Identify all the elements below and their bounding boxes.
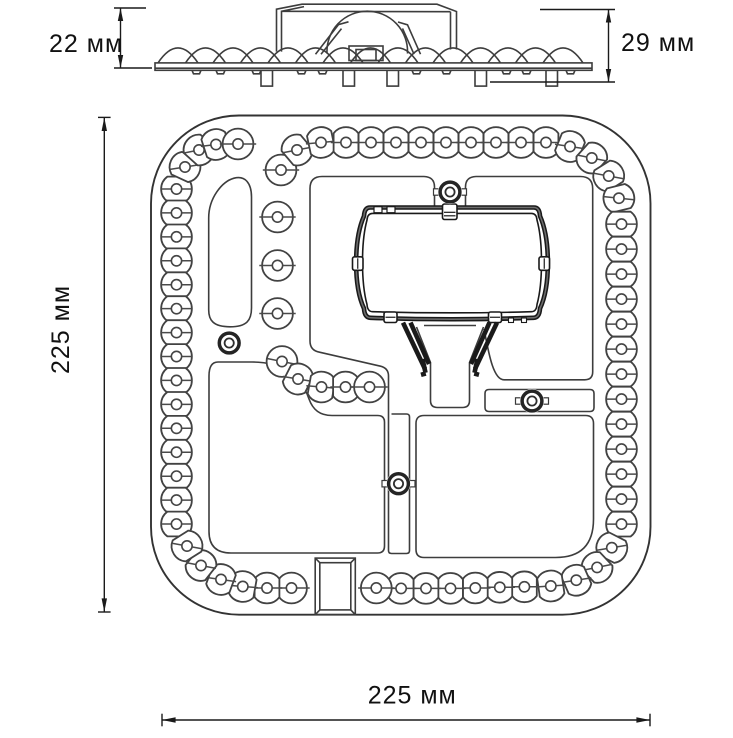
svg-text:225 мм: 225 мм [368, 682, 457, 710]
svg-text:29 мм: 29 мм [621, 29, 695, 57]
svg-text:225 мм: 225 мм [47, 285, 75, 374]
svg-text:22 мм: 22 мм [49, 30, 123, 58]
